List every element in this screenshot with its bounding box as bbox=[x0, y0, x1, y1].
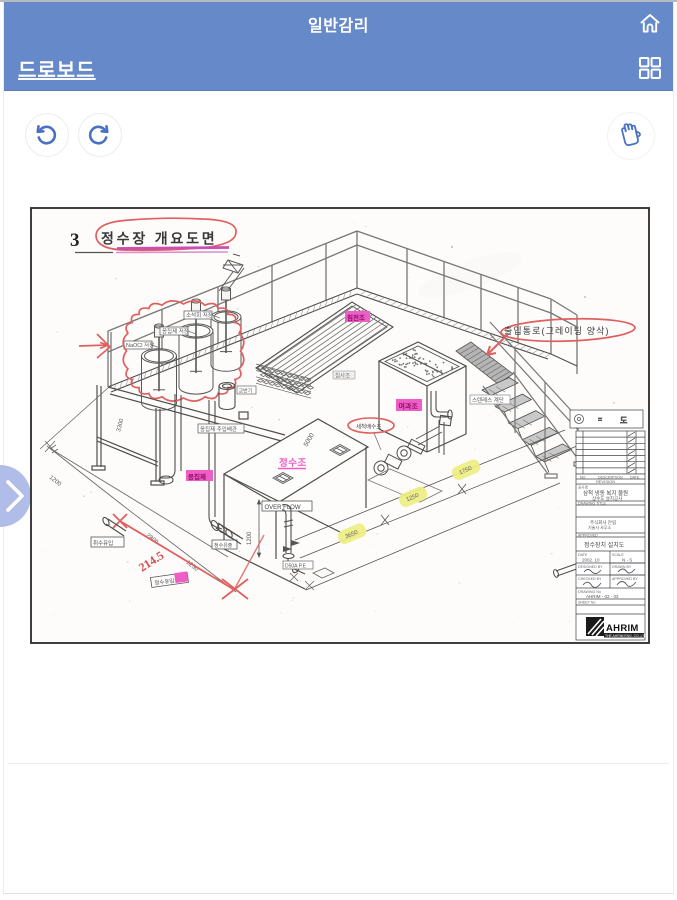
svg-text:2002. 10: 2002. 10 bbox=[582, 558, 600, 563]
svg-text:DATE: DATE bbox=[630, 475, 640, 479]
svg-text:3: 3 bbox=[70, 230, 80, 251]
svg-text:DATE: DATE bbox=[578, 553, 588, 557]
svg-text:스텐레스 계단: 스텐레스 계단 bbox=[472, 396, 504, 404]
svg-text:CHECKED BY: CHECKED BY bbox=[578, 577, 602, 581]
svg-text:1200: 1200 bbox=[247, 531, 253, 545]
svg-text:DRAWING TITLE: DRAWING TITLE bbox=[578, 502, 607, 506]
svg-text:APPROVED BY: APPROVED BY bbox=[612, 577, 638, 581]
svg-text:출입통로(그레이팅 양삭): 출입통로(그레이팅 양삭) bbox=[504, 325, 610, 336]
svg-text:SCALE: SCALE bbox=[612, 553, 624, 557]
svg-text:THE AHRIM ENG. CO.,LTD: THE AHRIM ENG. CO.,LTD bbox=[605, 634, 647, 638]
svg-text:정수유출: 정수유출 bbox=[214, 542, 233, 549]
svg-text:D50A P.E: D50A P.E bbox=[285, 564, 307, 570]
svg-text:REVISION: REVISION bbox=[596, 479, 615, 484]
svg-text:세척배수조: 세척배수조 bbox=[356, 423, 381, 431]
svg-text:취수유입: 취수유입 bbox=[93, 539, 113, 547]
svg-text:AHRIM - 02 - 03: AHRIM - 02 - 03 bbox=[586, 594, 619, 599]
svg-text:여과조: 여과조 bbox=[399, 402, 419, 411]
svg-text:정수장치 설치도: 정수장치 설치도 bbox=[584, 541, 625, 549]
svg-text:응집제 저장: 응집제 저장 bbox=[162, 327, 189, 335]
svg-text:정수조: 정수조 bbox=[279, 457, 307, 469]
svg-text:DRAWN BY: DRAWN BY bbox=[612, 565, 632, 569]
svg-text:침전조: 침전조 bbox=[347, 313, 365, 322]
svg-text:기술사 사무소: 기술사 사무소 bbox=[588, 524, 612, 530]
svg-text:APPROVED: APPROVED bbox=[578, 534, 598, 538]
svg-text:소석회 저장: 소석회 저장 bbox=[186, 311, 213, 319]
svg-text:N - S: N - S bbox=[622, 558, 632, 563]
svg-text:침사조: 침사조 bbox=[335, 372, 350, 380]
svg-text:정수장 개요도면: 정수장 개요도면 bbox=[101, 231, 217, 247]
svg-text:AHRIM: AHRIM bbox=[606, 623, 639, 634]
svg-text:교반기: 교반기 bbox=[239, 388, 253, 395]
svg-text:응집제: 응집제 bbox=[188, 472, 206, 481]
svg-text:DESIGNED BY: DESIGNED BY bbox=[578, 565, 603, 569]
svg-text:NO: NO bbox=[580, 475, 586, 479]
svg-text:도: 도 bbox=[620, 416, 627, 425]
svg-text:SHEET No: SHEET No bbox=[578, 601, 596, 605]
svg-text:응집제 주입배관: 응집제 주입배관 bbox=[200, 425, 237, 433]
svg-text:공사명: 공사명 bbox=[578, 485, 588, 490]
svg-text:NaOCl 저장: NaOCl 저장 bbox=[126, 341, 154, 349]
svg-text:=: = bbox=[598, 417, 602, 424]
